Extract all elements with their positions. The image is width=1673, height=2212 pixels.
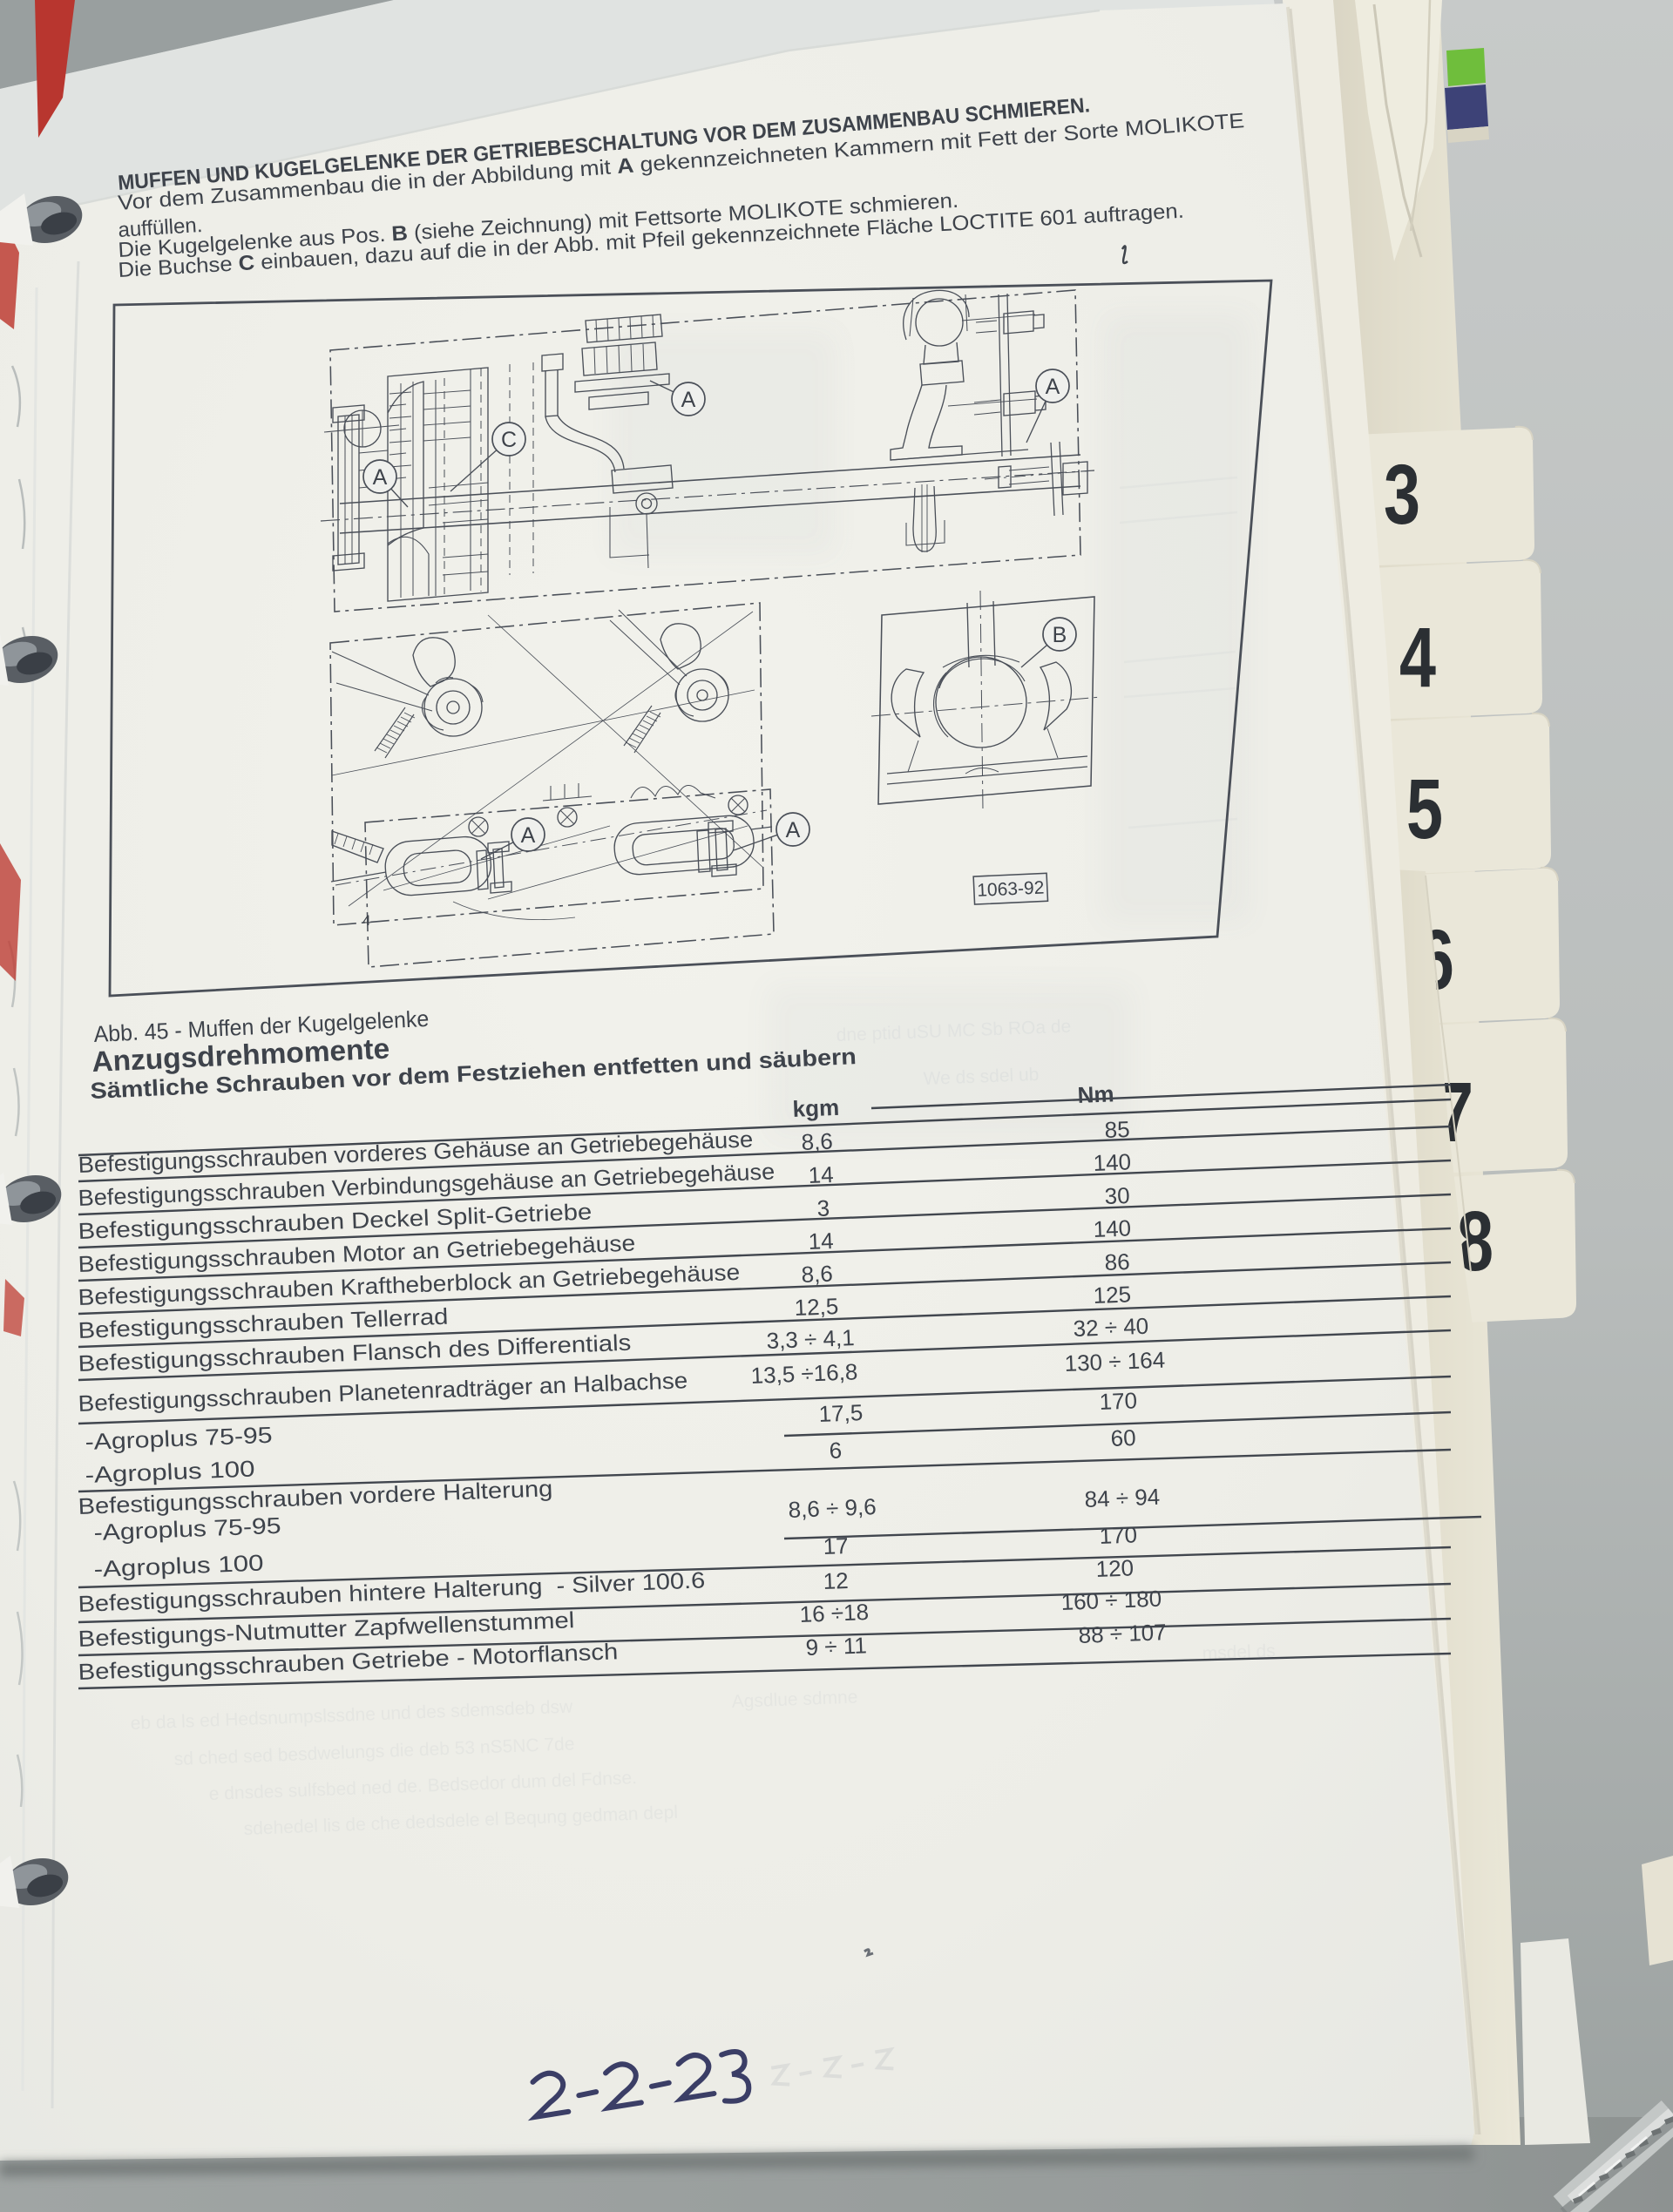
svg-text:6: 6 [829,1437,843,1464]
svg-text:kgm: kgm [792,1094,840,1122]
svg-text:125: 125 [1093,1281,1132,1309]
svg-text:1063-92: 1063-92 [977,877,1045,900]
svg-text:14: 14 [808,1228,834,1255]
svg-text:C: C [501,428,517,452]
svg-text:A: A [786,818,801,842]
svg-text:8,6: 8,6 [801,1261,833,1288]
svg-text:130 ÷ 164: 130 ÷ 164 [1064,1347,1166,1377]
svg-text:170: 170 [1099,1521,1138,1549]
svg-text:32 ÷ 40: 32 ÷ 40 [1073,1313,1149,1342]
svg-text:17: 17 [823,1532,849,1559]
svg-text:16 ÷18: 16 ÷18 [799,1599,869,1627]
svg-text:160 ÷ 180: 160 ÷ 180 [1060,1586,1162,1615]
svg-text:A: A [681,388,696,412]
svg-text:120: 120 [1095,1554,1135,1582]
svg-text:5: 5 [1406,761,1443,856]
svg-text:88 ÷ 107: 88 ÷ 107 [1078,1619,1167,1648]
svg-text:8,6: 8,6 [801,1128,833,1155]
svg-text:Nm: Nm [1077,1080,1114,1108]
svg-text:8,6 ÷ 9,6: 8,6 ÷ 9,6 [788,1493,877,1523]
svg-text:A: A [521,823,536,848]
svg-text:84 ÷ 94: 84 ÷ 94 [1084,1484,1161,1512]
svg-text:30: 30 [1104,1182,1130,1209]
svg-text:A: A [373,465,388,490]
svg-text:17,5: 17,5 [818,1399,864,1427]
svg-text:4: 4 [1399,610,1436,705]
svg-text:3,3 ÷ 4,1: 3,3 ÷ 4,1 [766,1324,855,1354]
svg-text:60: 60 [1110,1424,1136,1451]
svg-text:12: 12 [823,1567,849,1594]
svg-text:170: 170 [1099,1387,1138,1415]
svg-text:140: 140 [1093,1214,1132,1242]
svg-text:12,5: 12,5 [794,1293,839,1321]
svg-text:13,5 ÷16,8: 13,5 ÷16,8 [750,1358,858,1389]
svg-text:B: B [1053,623,1067,647]
svg-text:140: 140 [1093,1148,1132,1176]
svg-text:3: 3 [816,1194,830,1221]
svg-text:A: A [1046,375,1060,399]
svg-text:4: 4 [362,912,370,929]
svg-text:14: 14 [808,1161,834,1188]
svg-text:3: 3 [1384,447,1420,542]
svg-text:86: 86 [1104,1248,1130,1275]
svg-text:9 ÷ 11: 9 ÷ 11 [805,1632,867,1661]
svg-text:85: 85 [1104,1116,1130,1143]
